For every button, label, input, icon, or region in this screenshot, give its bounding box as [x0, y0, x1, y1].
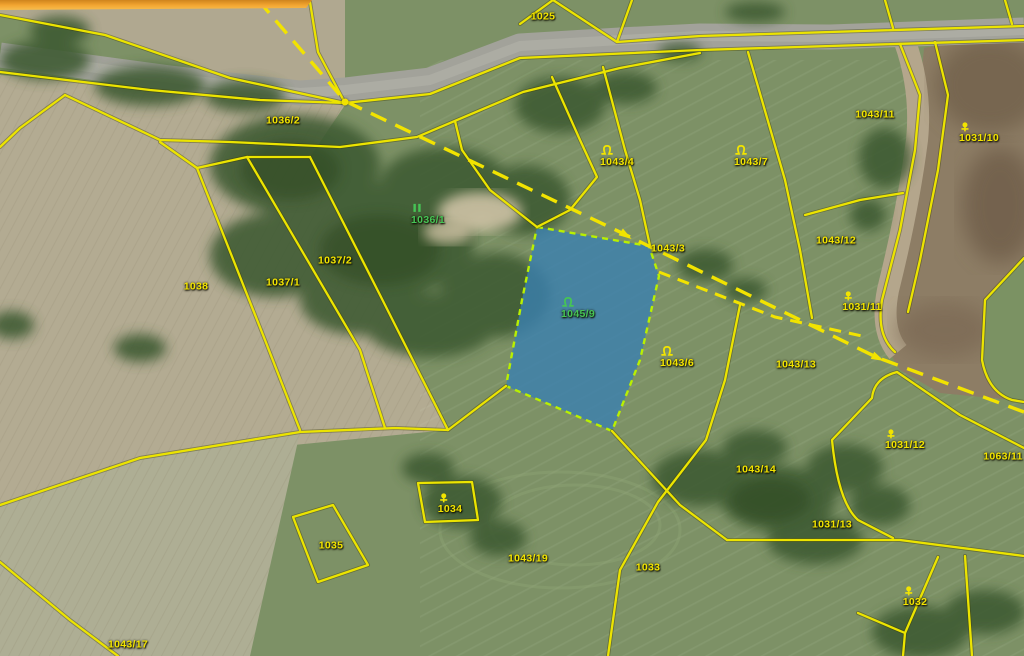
aerial-map-canvas[interactable]: [0, 0, 1024, 656]
cadastral-map-viewport[interactable]: 10251036/21036/11043/41043/71043/111031/…: [0, 0, 1024, 656]
